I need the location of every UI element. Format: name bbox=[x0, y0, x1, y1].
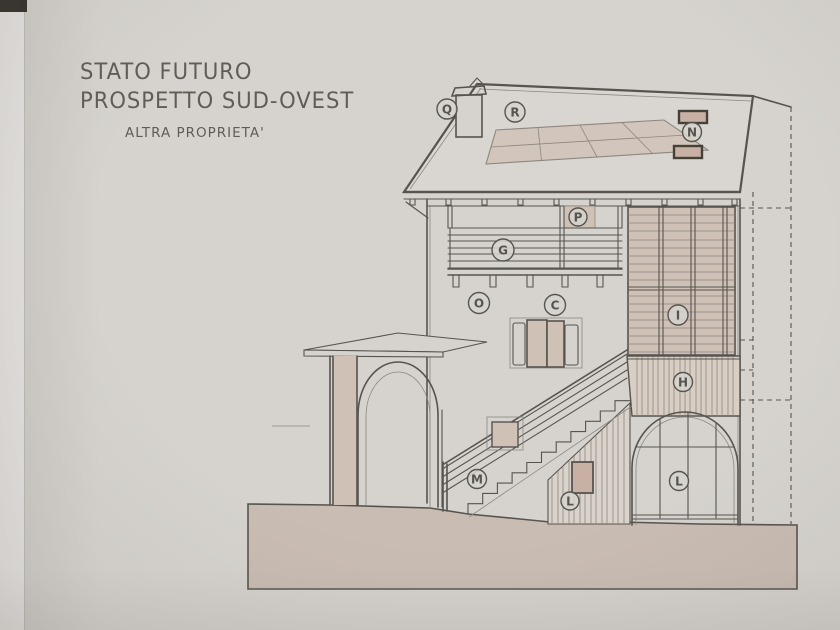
label-h: H bbox=[674, 373, 693, 392]
svg-text:L: L bbox=[566, 495, 574, 509]
portico-arch bbox=[358, 362, 438, 507]
label-l-arch: L bbox=[670, 472, 689, 491]
label-c: C bbox=[545, 295, 566, 316]
svg-text:P: P bbox=[574, 211, 583, 225]
portico-pillar bbox=[333, 356, 357, 505]
label-n: N bbox=[683, 123, 702, 142]
svg-text:M: M bbox=[471, 473, 483, 487]
photographed-drawing: STATO FUTURO PROSPETTO SUD-OVEST ALTRA P… bbox=[0, 0, 840, 630]
svg-text:N: N bbox=[687, 126, 697, 140]
label-i: I bbox=[668, 305, 688, 325]
label-r: R bbox=[505, 102, 525, 122]
label-g: G bbox=[492, 239, 514, 261]
portico-roof-slab bbox=[304, 333, 487, 352]
label-m: M bbox=[468, 470, 487, 489]
portico bbox=[304, 333, 487, 507]
svg-text:C: C bbox=[551, 299, 560, 313]
svg-text:L: L bbox=[675, 475, 683, 489]
elevation-drawing: Q R N P G O C I H M L L bbox=[0, 0, 840, 630]
svg-text:I: I bbox=[676, 309, 680, 323]
label-o: O bbox=[469, 293, 490, 314]
label-l-wall: L bbox=[561, 492, 579, 510]
adjacent-property-outline bbox=[740, 96, 791, 524]
svg-text:G: G bbox=[498, 244, 508, 258]
small-window-under-stairs bbox=[572, 462, 593, 493]
shutter-left bbox=[527, 320, 547, 367]
balcony bbox=[448, 206, 622, 287]
louver-screen bbox=[628, 207, 735, 355]
svg-text:O: O bbox=[474, 297, 484, 311]
ground bbox=[248, 504, 797, 589]
shutter-right bbox=[547, 321, 564, 367]
label-q: Q bbox=[437, 99, 457, 119]
svg-text:H: H bbox=[678, 376, 688, 390]
railing-posts bbox=[453, 275, 603, 287]
svg-text:R: R bbox=[510, 106, 519, 120]
rafter-tails bbox=[410, 199, 737, 205]
shuttered-window bbox=[510, 318, 582, 368]
stair-window bbox=[492, 422, 518, 447]
label-p: P bbox=[569, 208, 587, 226]
balcony-railing bbox=[448, 228, 622, 287]
arched-door bbox=[632, 412, 738, 525]
svg-text:Q: Q bbox=[442, 103, 452, 117]
